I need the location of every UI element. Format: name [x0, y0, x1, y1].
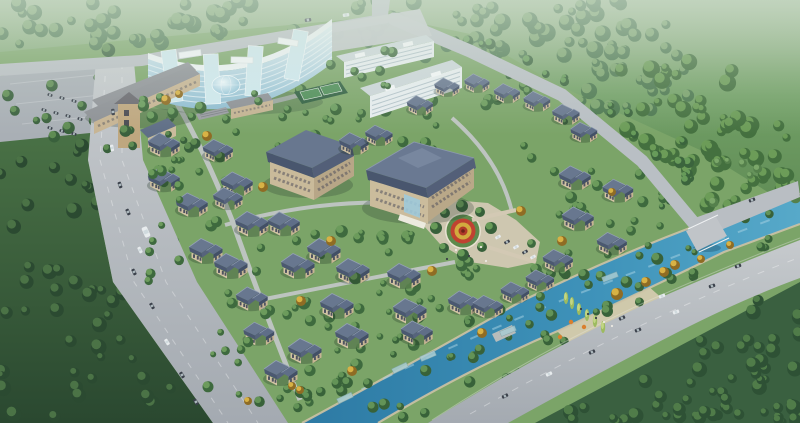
- person: [468, 255, 470, 257]
- person: [446, 258, 448, 260]
- poplar-tree: [593, 315, 597, 327]
- person: [580, 308, 582, 310]
- poplar-tree: [564, 292, 568, 304]
- orange-sculpture: [558, 335, 562, 339]
- orange-sculpture: [582, 325, 586, 329]
- person: [455, 249, 457, 251]
- poplar-tree: [585, 309, 589, 321]
- garden-ring: [461, 229, 465, 233]
- person: [587, 313, 589, 315]
- orange-sculpture: [569, 320, 573, 324]
- person: [480, 246, 482, 248]
- atmospheric-haze: [0, 0, 800, 135]
- person: [595, 317, 597, 319]
- person: [611, 325, 613, 327]
- poplar-tree: [570, 297, 574, 309]
- person: [603, 321, 605, 323]
- aerial-rendering: [0, 0, 800, 423]
- person: [485, 260, 487, 262]
